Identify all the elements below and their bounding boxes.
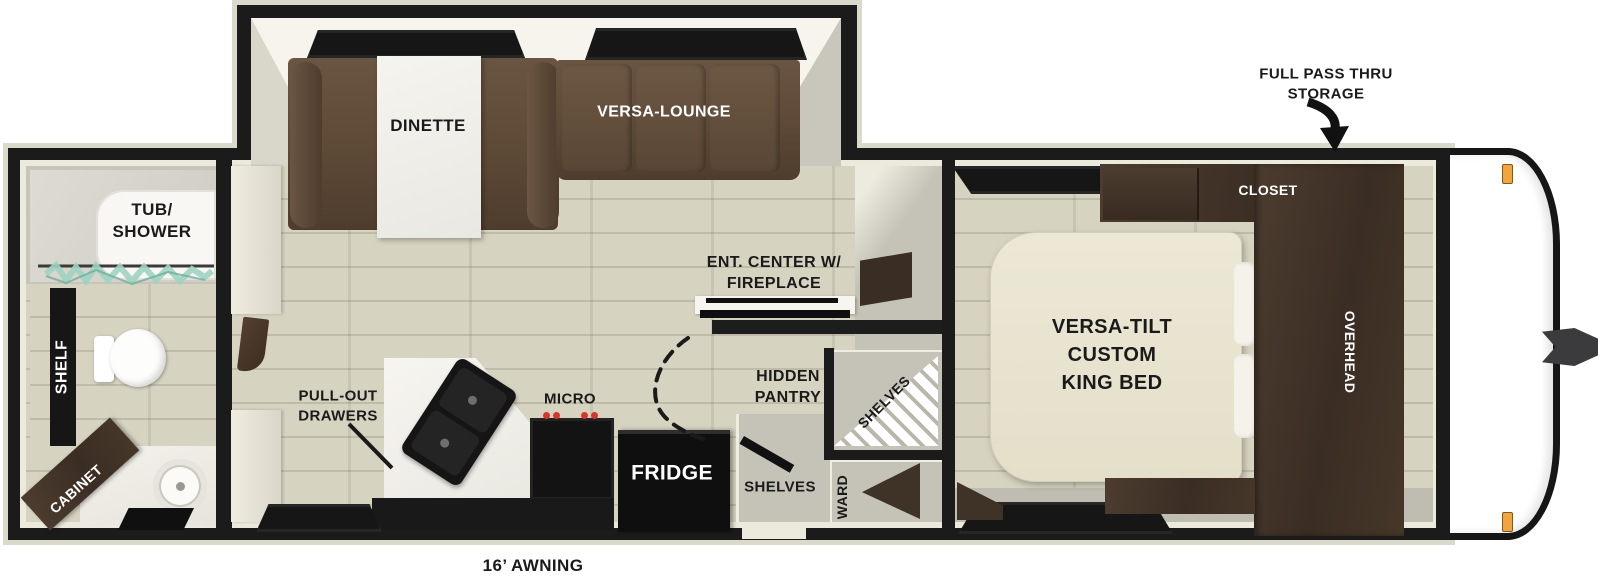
- ent-center-tv-strip: [706, 298, 838, 303]
- toilet-bowl: [110, 329, 166, 387]
- bed-foot-cabinet: [1105, 478, 1255, 514]
- bath-door-pocket-top: [231, 166, 281, 314]
- pull-out-drawers-label: PULL-OUT DRAWERS: [298, 387, 377, 426]
- versa-lounge-label: VERSA-LOUNGE: [597, 103, 731, 124]
- overhead-label: OVERHEAD: [1341, 311, 1359, 394]
- storage-arrow-icon: [1308, 102, 1335, 133]
- tv-panel: [860, 252, 912, 306]
- full-pass-thru-label: FULL PASS THRU STORAGE: [1259, 65, 1392, 104]
- ent-center-half-wall: [712, 320, 942, 334]
- micro-label: MICRO: [544, 389, 596, 409]
- awning-label: 16’ AWNING: [483, 555, 584, 577]
- dinette-armrest-left: [290, 62, 322, 228]
- range-burner-dot: [543, 412, 550, 419]
- range-burner-dot: [591, 412, 598, 419]
- hidden-pantry-label: HIDDEN PANTRY: [755, 367, 821, 409]
- closet-label: CLOSET: [1238, 181, 1297, 199]
- tub-shower-label: TUB/ SHOWER: [113, 199, 192, 243]
- shelves-partition-wall: [824, 348, 834, 452]
- overhead-cabinet: [1254, 164, 1404, 536]
- shelf-label: SHELF: [53, 340, 74, 394]
- marker-light: [1502, 164, 1513, 184]
- bedroom-partition-wall: [942, 148, 955, 540]
- dinette-table: [377, 56, 481, 238]
- floorplan-canvas: TUB/ SHOWER SHELF CABINET DINETTE VERSA-…: [0, 0, 1600, 582]
- ent-center-label: ENT. CENTER W/ FIREPLACE: [707, 253, 842, 295]
- bath-sink-drain: [176, 482, 185, 491]
- kitchen-base-cabinet: [372, 498, 614, 530]
- ward-label: WARD: [833, 475, 851, 519]
- dinette-armrest-right: [527, 62, 559, 228]
- marker-light: [1502, 512, 1513, 532]
- shelves-ward-divider-wall: [824, 450, 942, 460]
- entry-door-opening: [742, 522, 806, 539]
- range-burner-dot: [553, 412, 560, 419]
- ent-center-shelf-strip: [700, 310, 850, 318]
- kitchen-range: [530, 418, 614, 500]
- fridge-label: FRIDGE: [631, 459, 713, 486]
- window: [307, 30, 525, 58]
- window: [256, 504, 382, 532]
- bath-doormat: [118, 508, 194, 530]
- dinette-label: DINETTE: [390, 115, 466, 137]
- range-burner-dot: [581, 412, 588, 419]
- entry-shelves-label: SHELVES: [744, 477, 816, 497]
- bathroom-partition-wall: [216, 148, 232, 540]
- closet-sub-cabinet: [1103, 168, 1199, 220]
- king-bed-label: VERSA-TILT CUSTOM KING BED: [1052, 313, 1172, 397]
- window: [585, 28, 807, 60]
- front-cap: [1450, 148, 1560, 540]
